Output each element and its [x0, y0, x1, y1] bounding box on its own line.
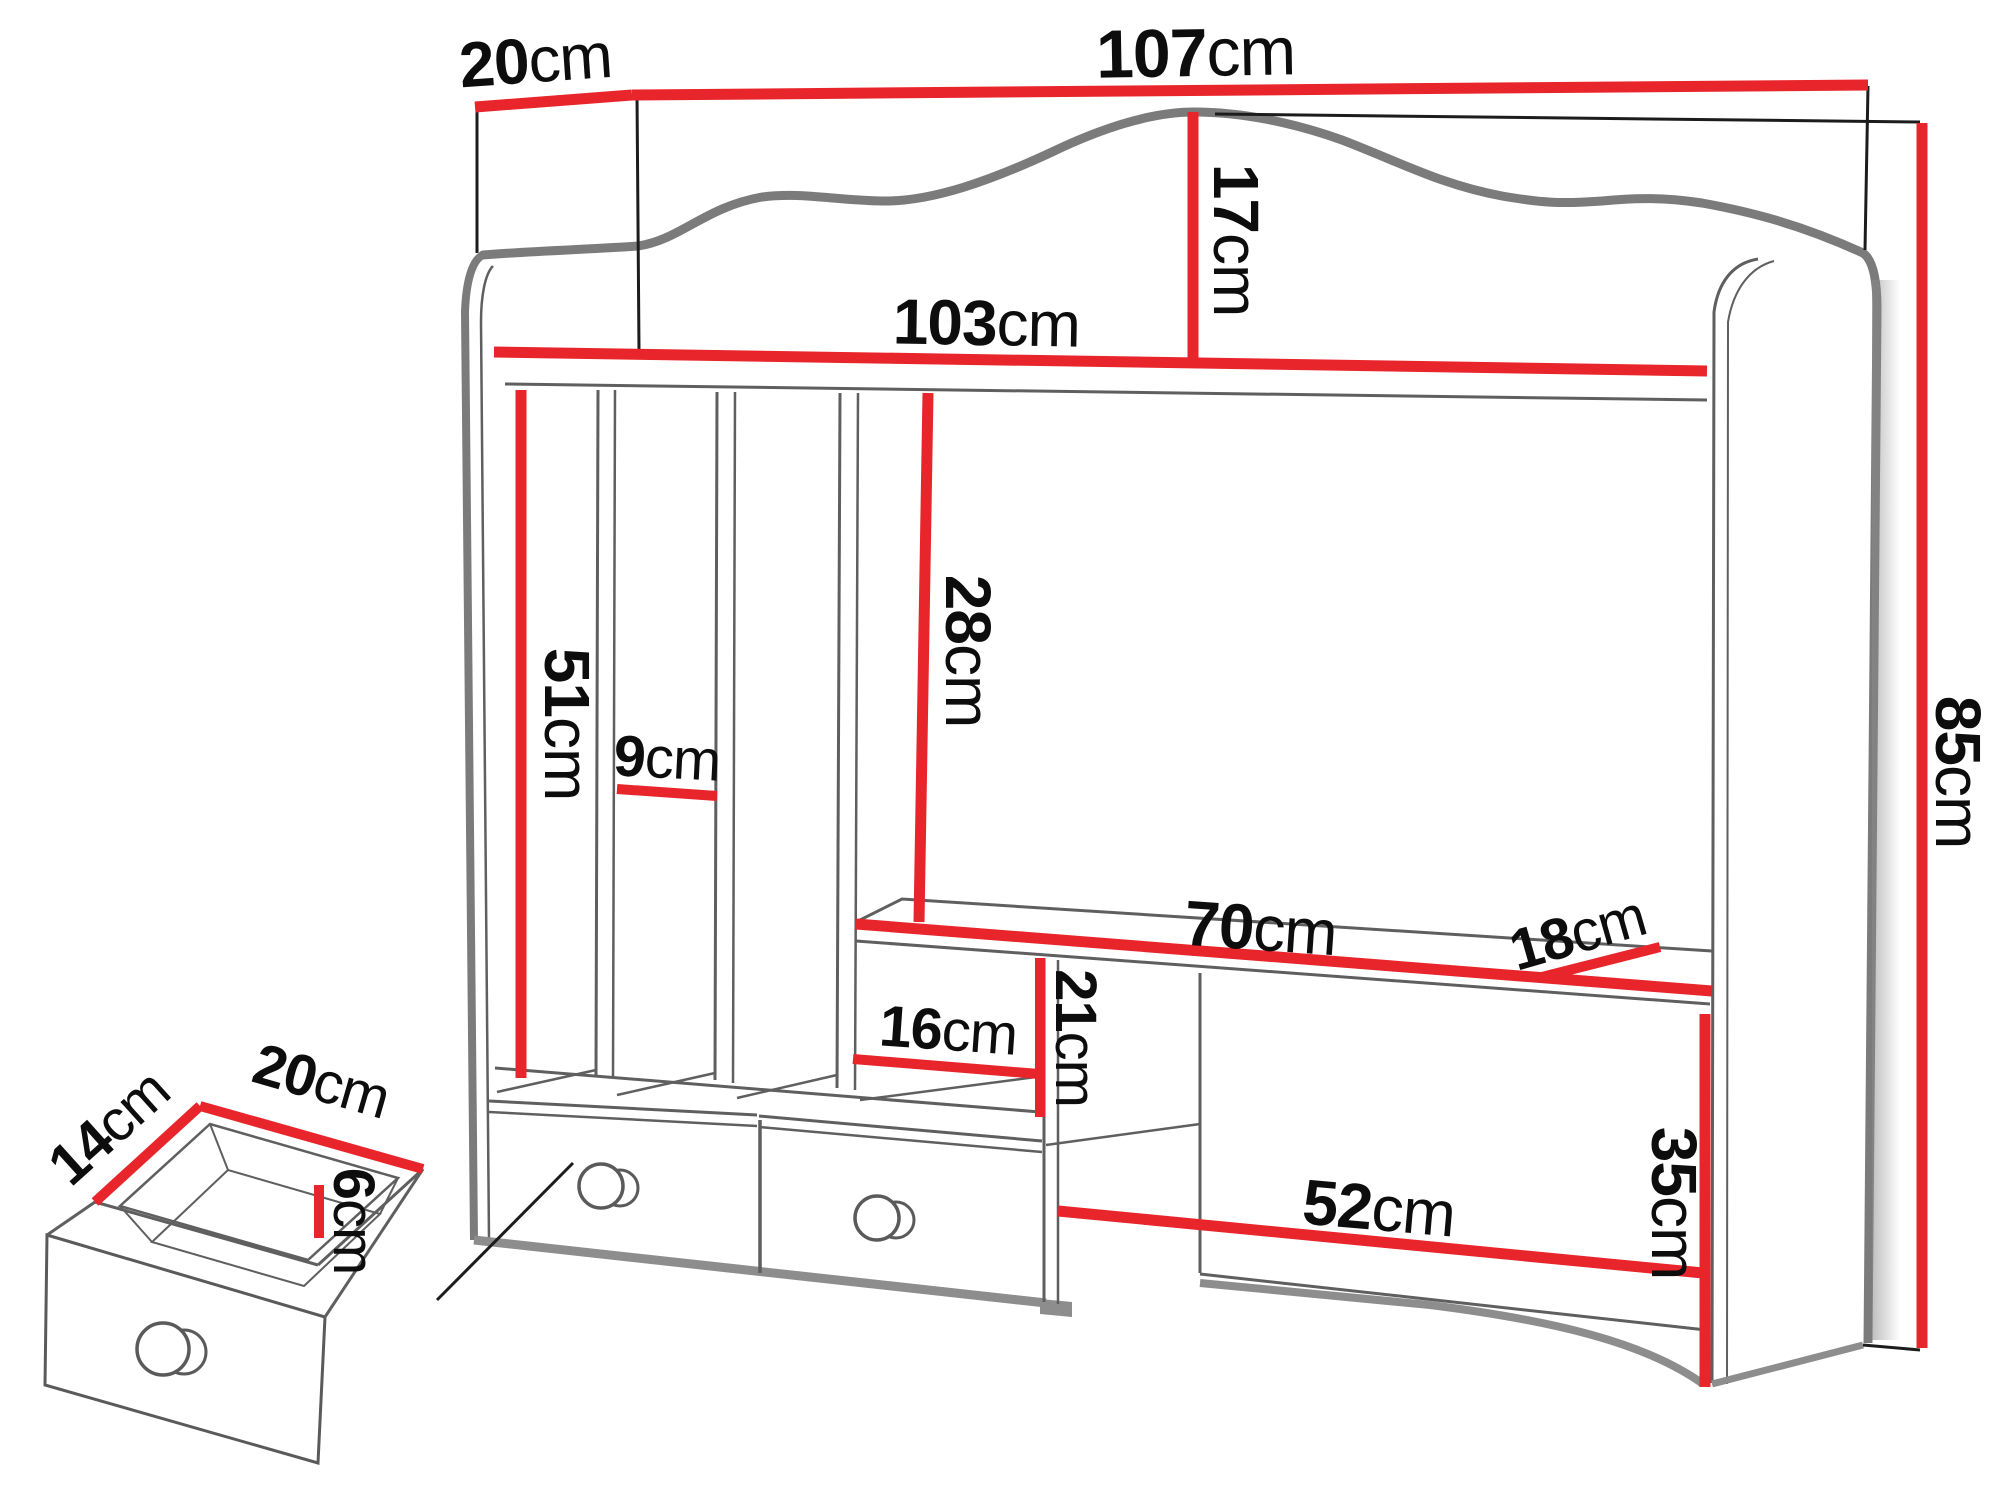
detail-drawer-knob — [137, 1323, 189, 1375]
dim-line-shelf-width-103 — [494, 352, 1707, 371]
right-panel-shadow — [1872, 280, 1900, 1340]
witness-lines — [437, 86, 1920, 1300]
diagram-canvas: 20cm 107cm 103cm 17cm 85cm 51cm 9cm 28cm… — [0, 0, 2000, 1500]
right-drawer-top-edge — [759, 1116, 1042, 1141]
dim-label-cubby-width: 16cm — [877, 993, 1019, 1067]
right-top-witness-line — [1865, 86, 1868, 250]
dim-label-side-height: 85cm — [1922, 696, 1994, 849]
divider-3-rear — [855, 393, 858, 1090]
dim-label-cubby-height: 21cm — [1043, 969, 1108, 1107]
right-drawer-top-gap-line — [759, 1127, 1042, 1152]
dim-label-crown-height: 17cm — [1200, 164, 1272, 317]
dimension-diagram: 20cm 107cm 103cm 17cm 85cm 51cm 9cm 28cm… — [0, 0, 2000, 1500]
bottom-front-edge-open-section — [1200, 1274, 1706, 1330]
drawer-cavity-corner-2 — [210, 1124, 228, 1170]
right-panel-inner-front-edge — [1712, 259, 1758, 1383]
right-drawer-knob[interactable] — [855, 1196, 899, 1240]
slot-bottom-diagonal-4 — [860, 1077, 1036, 1100]
dim-label-niche-height: 28cm — [932, 575, 1004, 728]
dim-label-slot-width: 9cm — [612, 723, 722, 793]
divider-3-front — [837, 393, 840, 1088]
right-panel-bottom-edge — [1712, 1345, 1863, 1384]
dim-label-top-depth: 20cm — [457, 19, 614, 101]
dim-label-drawer-height: 6cm — [321, 1168, 386, 1275]
cabinet-side-top-edge — [1046, 1124, 1200, 1145]
dim-label-slot-height: 51cm — [531, 648, 603, 801]
crest-height-witness-line — [1215, 114, 1920, 122]
drawer-detail-leader-line — [437, 1163, 573, 1300]
dim-label-drawer-width: 20cm — [246, 1031, 396, 1131]
right-panel-inner-rear-edge — [1727, 261, 1774, 1384]
back-corner-witness-line — [637, 95, 639, 350]
dim-label-opening-height: 35cm — [1638, 1127, 1710, 1280]
bottom-shadow-edge-open-section — [1200, 1283, 1703, 1384]
dim-line-drawer-width-20 — [200, 1106, 423, 1169]
dim-label-opening-width: 52cm — [1300, 1166, 1458, 1251]
left-panel-outer-edge — [465, 255, 483, 1240]
dim-label-drawer-depth: 14cm — [36, 1057, 182, 1198]
dim-label-desk-width: 70cm — [1182, 887, 1339, 969]
dim-label-shelf-width: 103cm — [892, 285, 1080, 360]
dim-line-niche-height-28 — [919, 393, 928, 922]
drawer-rim-front-edge — [95, 1202, 318, 1265]
drawer-left-wall-edge — [47, 1202, 95, 1235]
right-panel-foot-line — [1863, 1345, 1920, 1350]
divider-2-rear — [733, 392, 735, 1083]
left-panel-inner-edge — [481, 266, 493, 1240]
crown-curve — [483, 112, 1863, 255]
top-shelf-edge — [505, 384, 1707, 400]
left-drawer-knob[interactable] — [579, 1164, 623, 1208]
dim-label-top-width: 107cm — [1095, 13, 1295, 92]
